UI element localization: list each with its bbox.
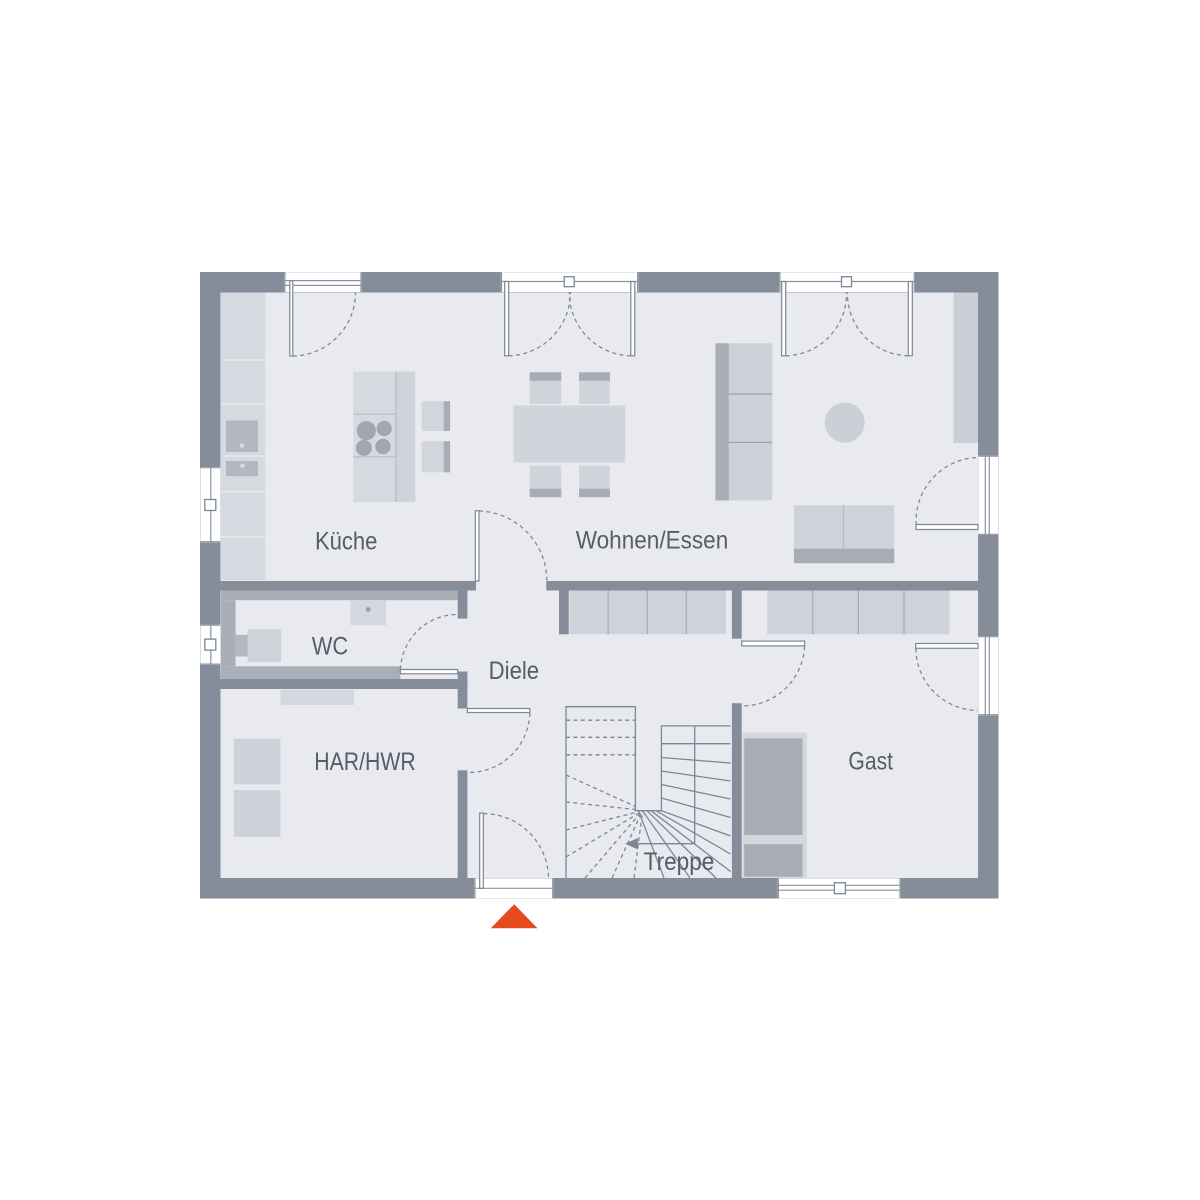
svg-text:HAR/HWR: HAR/HWR — [314, 748, 416, 776]
svg-text:Küche: Küche — [315, 528, 378, 556]
svg-text:Wohnen/Essen: Wohnen/Essen — [576, 527, 729, 555]
svg-text:Gast: Gast — [848, 748, 893, 776]
svg-text:Diele: Diele — [489, 657, 540, 685]
svg-text:WC: WC — [312, 633, 349, 661]
svg-text:Treppe: Treppe — [644, 848, 715, 876]
